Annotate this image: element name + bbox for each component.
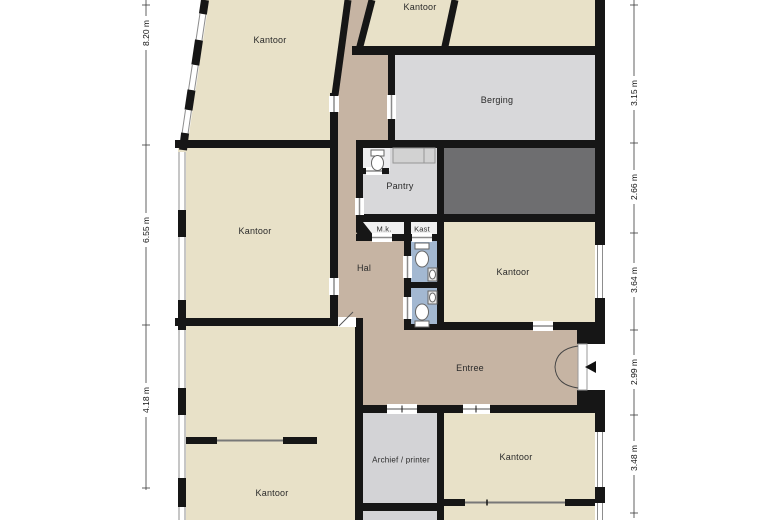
dim-right-3-15: 3.15 m: [629, 76, 639, 110]
room-label-pantry: Pantry: [386, 181, 413, 191]
toilet-icon: [371, 150, 384, 171]
room-dark-storage-floor: [443, 140, 595, 218]
room-label-kantoor-top-left: Kantoor: [254, 35, 287, 45]
dim-right-3-64: 3.64 m: [629, 263, 639, 297]
floor-plan: Kantoor Kantoor Berging Pantry M.k. Kast…: [0, 0, 780, 520]
pantry-counter: [393, 148, 435, 163]
room-label-meterkast: M.k.: [377, 225, 392, 234]
floor-plan-geometry: [0, 0, 780, 520]
window-right-mid: [595, 245, 605, 298]
room-label-kast: Kast: [414, 225, 430, 234]
room-kantoor-top-right-floor: [448, 0, 600, 50]
dim-left-8-20: 8.20 m: [141, 16, 151, 50]
room-label-kantoor-mid-right: Kantoor: [497, 267, 530, 277]
sink-icon: [428, 268, 437, 281]
toilet-icon: [415, 243, 429, 267]
dim-right-3-48: 3.48 m: [629, 441, 639, 475]
room-label-kantoor-bottom-right: Kantoor: [500, 452, 533, 462]
sink-icon: [428, 291, 437, 304]
dim-right-2-99: 2.99 m: [629, 355, 639, 389]
room-label-hal: Hal: [357, 263, 371, 273]
dim-left-6-55: 6.55 m: [141, 213, 151, 247]
dim-left-4-18: 4.18 m: [141, 383, 151, 417]
dim-right-2-66: 2.66 m: [629, 170, 639, 204]
room-label-berging: Berging: [481, 95, 513, 105]
room-label-archief-printer: Archief / printer: [372, 456, 430, 465]
room-label-kantoor-bottom-left: Kantoor: [256, 488, 289, 498]
room-label-entree: Entree: [456, 363, 484, 373]
right-wall: [595, 0, 605, 520]
window-right-bottom: [595, 432, 605, 520]
room-label-kantoor-mid-left: Kantoor: [239, 226, 272, 236]
toilet-icon: [415, 304, 429, 327]
room-kantoor-top-left-floor: [184, 0, 348, 148]
room-label-kantoor-top-mid: Kantoor: [404, 2, 437, 12]
